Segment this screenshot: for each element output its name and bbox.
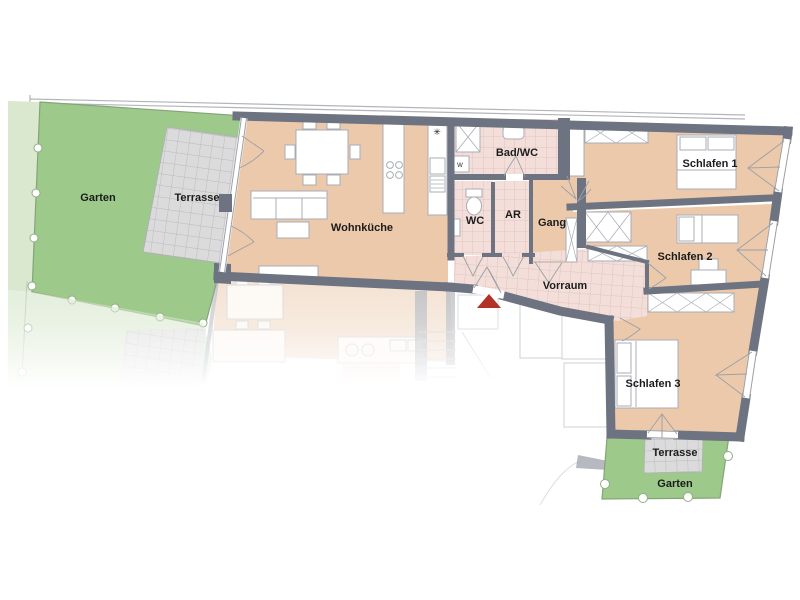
label-wc: WC	[466, 215, 484, 227]
garden-bottom-area	[601, 436, 733, 503]
desk-schlafen-2	[691, 270, 726, 285]
label-bad-wc: Bad/WC	[496, 147, 538, 159]
coffee-table	[277, 222, 309, 238]
label-gang: Gang	[538, 217, 566, 229]
label-ar: AR	[505, 209, 521, 221]
label-schlafen-2: Schlafen 2	[657, 251, 712, 263]
washer-label: W	[457, 163, 463, 169]
label-garten-left: Garten	[80, 192, 116, 204]
floor-plan-page: Garten Terrasse Wohnküche Bad/WC WC AR G…	[0, 0, 800, 600]
faded-garden-path	[540, 462, 578, 505]
label-schlafen-1: Schlafen 1	[682, 158, 737, 170]
kitchen-island	[383, 121, 404, 213]
terrace-door-schlafen-3	[647, 430, 678, 439]
sofa	[251, 191, 327, 219]
sink-symbol-icon: ✳	[433, 127, 441, 137]
bed-schlafen-2	[677, 215, 738, 243]
label-garten-bottom: Garten	[657, 478, 693, 490]
floor-plan-canvas: Garten Terrasse Wohnküche Bad/WC WC AR G…	[0, 0, 800, 600]
bed-schlafen-3	[615, 340, 678, 408]
label-wohnkueche: Wohnküche	[331, 222, 393, 234]
toilet	[466, 189, 482, 215]
wall-pillar	[219, 194, 232, 212]
label-schlafen-3: Schlafen 3	[625, 378, 680, 390]
label-vorraum: Vorraum	[543, 280, 588, 292]
faded-wall-stub	[576, 455, 608, 470]
wardrobe-schlafen-3	[648, 293, 734, 312]
dining-table	[296, 130, 348, 174]
label-terrasse-bottom: Terrasse	[652, 447, 697, 459]
label-terrasse-left: Terrasse	[174, 192, 219, 204]
